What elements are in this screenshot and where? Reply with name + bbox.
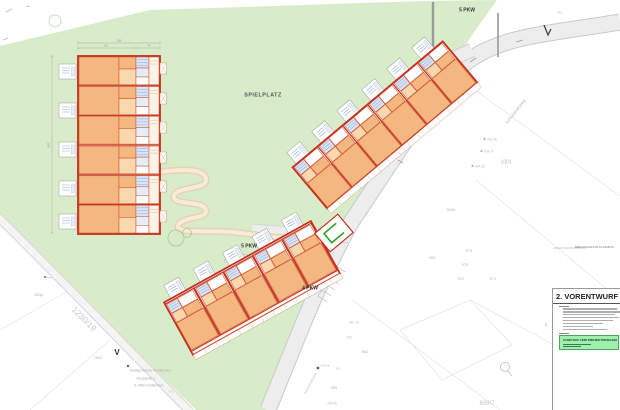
bebauungsplan-note: BEBAUUNGSPLAN FA-KAMPUS — [575, 246, 614, 249]
client-highlight: AUER BAU UND PROJEKTMANAGEMENT — [559, 335, 619, 350]
title-block: 2. VORENTWURF AUER BAU UND PROJEKTMANAGE… — [552, 288, 620, 410]
site-plan-canvas — [0, 0, 620, 410]
title-block-text — [563, 308, 620, 330]
title-block-field-label — [559, 306, 569, 307]
title-block-heading: 2. VORENTWURF — [553, 289, 620, 304]
site-plan: SPIELPLATZ5 PKW5 PKW4 PKWSchulstraßwegSc… — [0, 0, 620, 410]
client-name: AUER BAU UND PROJEKTMANAGEMENT — [563, 338, 617, 342]
title-block-field-label-2 — [559, 333, 569, 334]
